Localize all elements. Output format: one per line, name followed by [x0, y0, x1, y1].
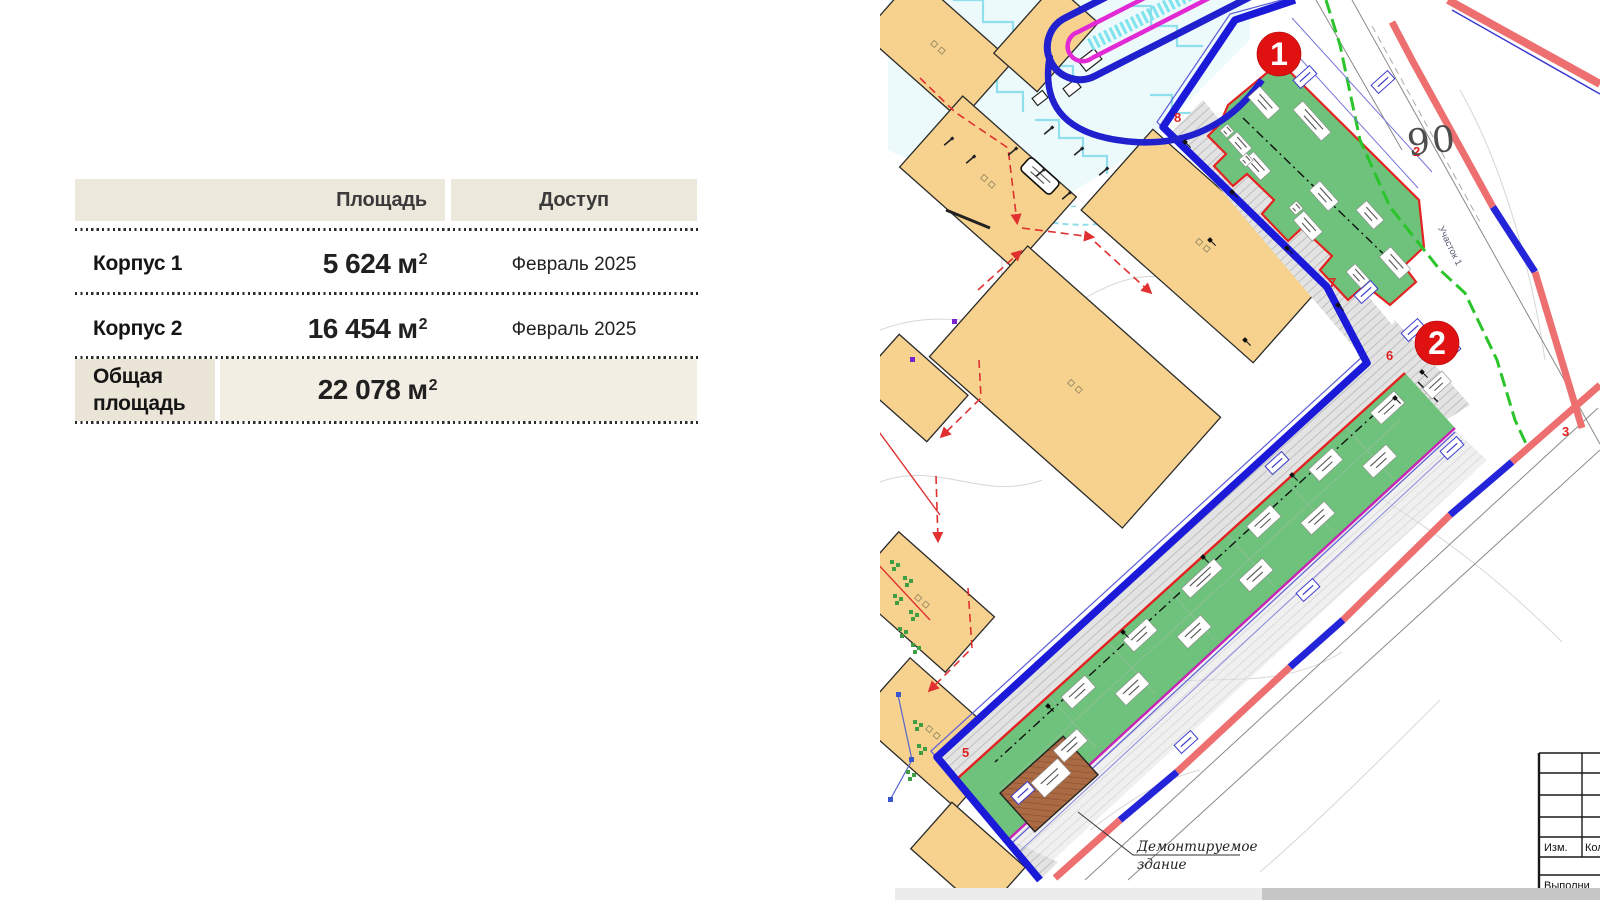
column-header-area: Площадь: [75, 179, 445, 221]
point-7: 7: [1329, 275, 1336, 290]
titleblock-izm: Изм.: [1544, 842, 1568, 854]
area-unit: м: [397, 248, 417, 279]
point-8: 8: [1174, 110, 1181, 125]
marker-1-number: 1: [1270, 36, 1288, 72]
point-5: 5: [962, 745, 969, 760]
point-6: 6: [1386, 348, 1393, 363]
horizontal-scrollbar[interactable]: [895, 888, 1600, 900]
area-number: 22 078: [318, 374, 401, 405]
demolition-note-line2: здание: [1137, 857, 1187, 873]
area-unit: м: [407, 374, 427, 405]
table-divider: [75, 292, 700, 295]
building-marker-1: 1: [1257, 32, 1301, 76]
row-name-korpus1: Корпус 1: [93, 252, 182, 276]
site-plan-map: 8 7 6 2 3 5 90 Участок 1 Демонтируемое з…: [880, 0, 1600, 900]
row-area-korpus2: 16 454м2: [210, 313, 427, 345]
row-access-korpus1: Февраль 2025: [451, 254, 697, 276]
titleblock-kol: Кол: [1585, 842, 1600, 854]
area-power: 2: [419, 251, 427, 268]
area-number: 5 624: [323, 248, 391, 279]
table-divider: [75, 228, 700, 231]
plot-number: 90: [1405, 119, 1459, 165]
area-power: 2: [419, 316, 427, 333]
row-name-total: Общая площадь: [93, 363, 213, 417]
building-marker-2: 2: [1415, 321, 1459, 365]
row-area-total: 22 078м2: [220, 374, 437, 406]
marker-2-number: 2: [1428, 325, 1446, 361]
row-area-korpus1: 5 624м2: [210, 248, 427, 280]
area-number: 16 454: [308, 313, 391, 344]
row-access-korpus2: Февраль 2025: [451, 319, 697, 341]
demolition-note-line1: Демонтируемое: [1136, 839, 1257, 855]
row-name-korpus2: Корпус 2: [93, 317, 182, 341]
scrollbar-thumb[interactable]: [1262, 888, 1600, 900]
area-unit: м: [397, 313, 417, 344]
table-divider: [75, 421, 700, 424]
area-power: 2: [429, 377, 437, 394]
slide: Площадь Доступ Корпус 1 5 624м2 Февраль …: [0, 0, 1600, 900]
point-3: 3: [1562, 424, 1569, 439]
column-header-access: Доступ: [451, 179, 697, 221]
